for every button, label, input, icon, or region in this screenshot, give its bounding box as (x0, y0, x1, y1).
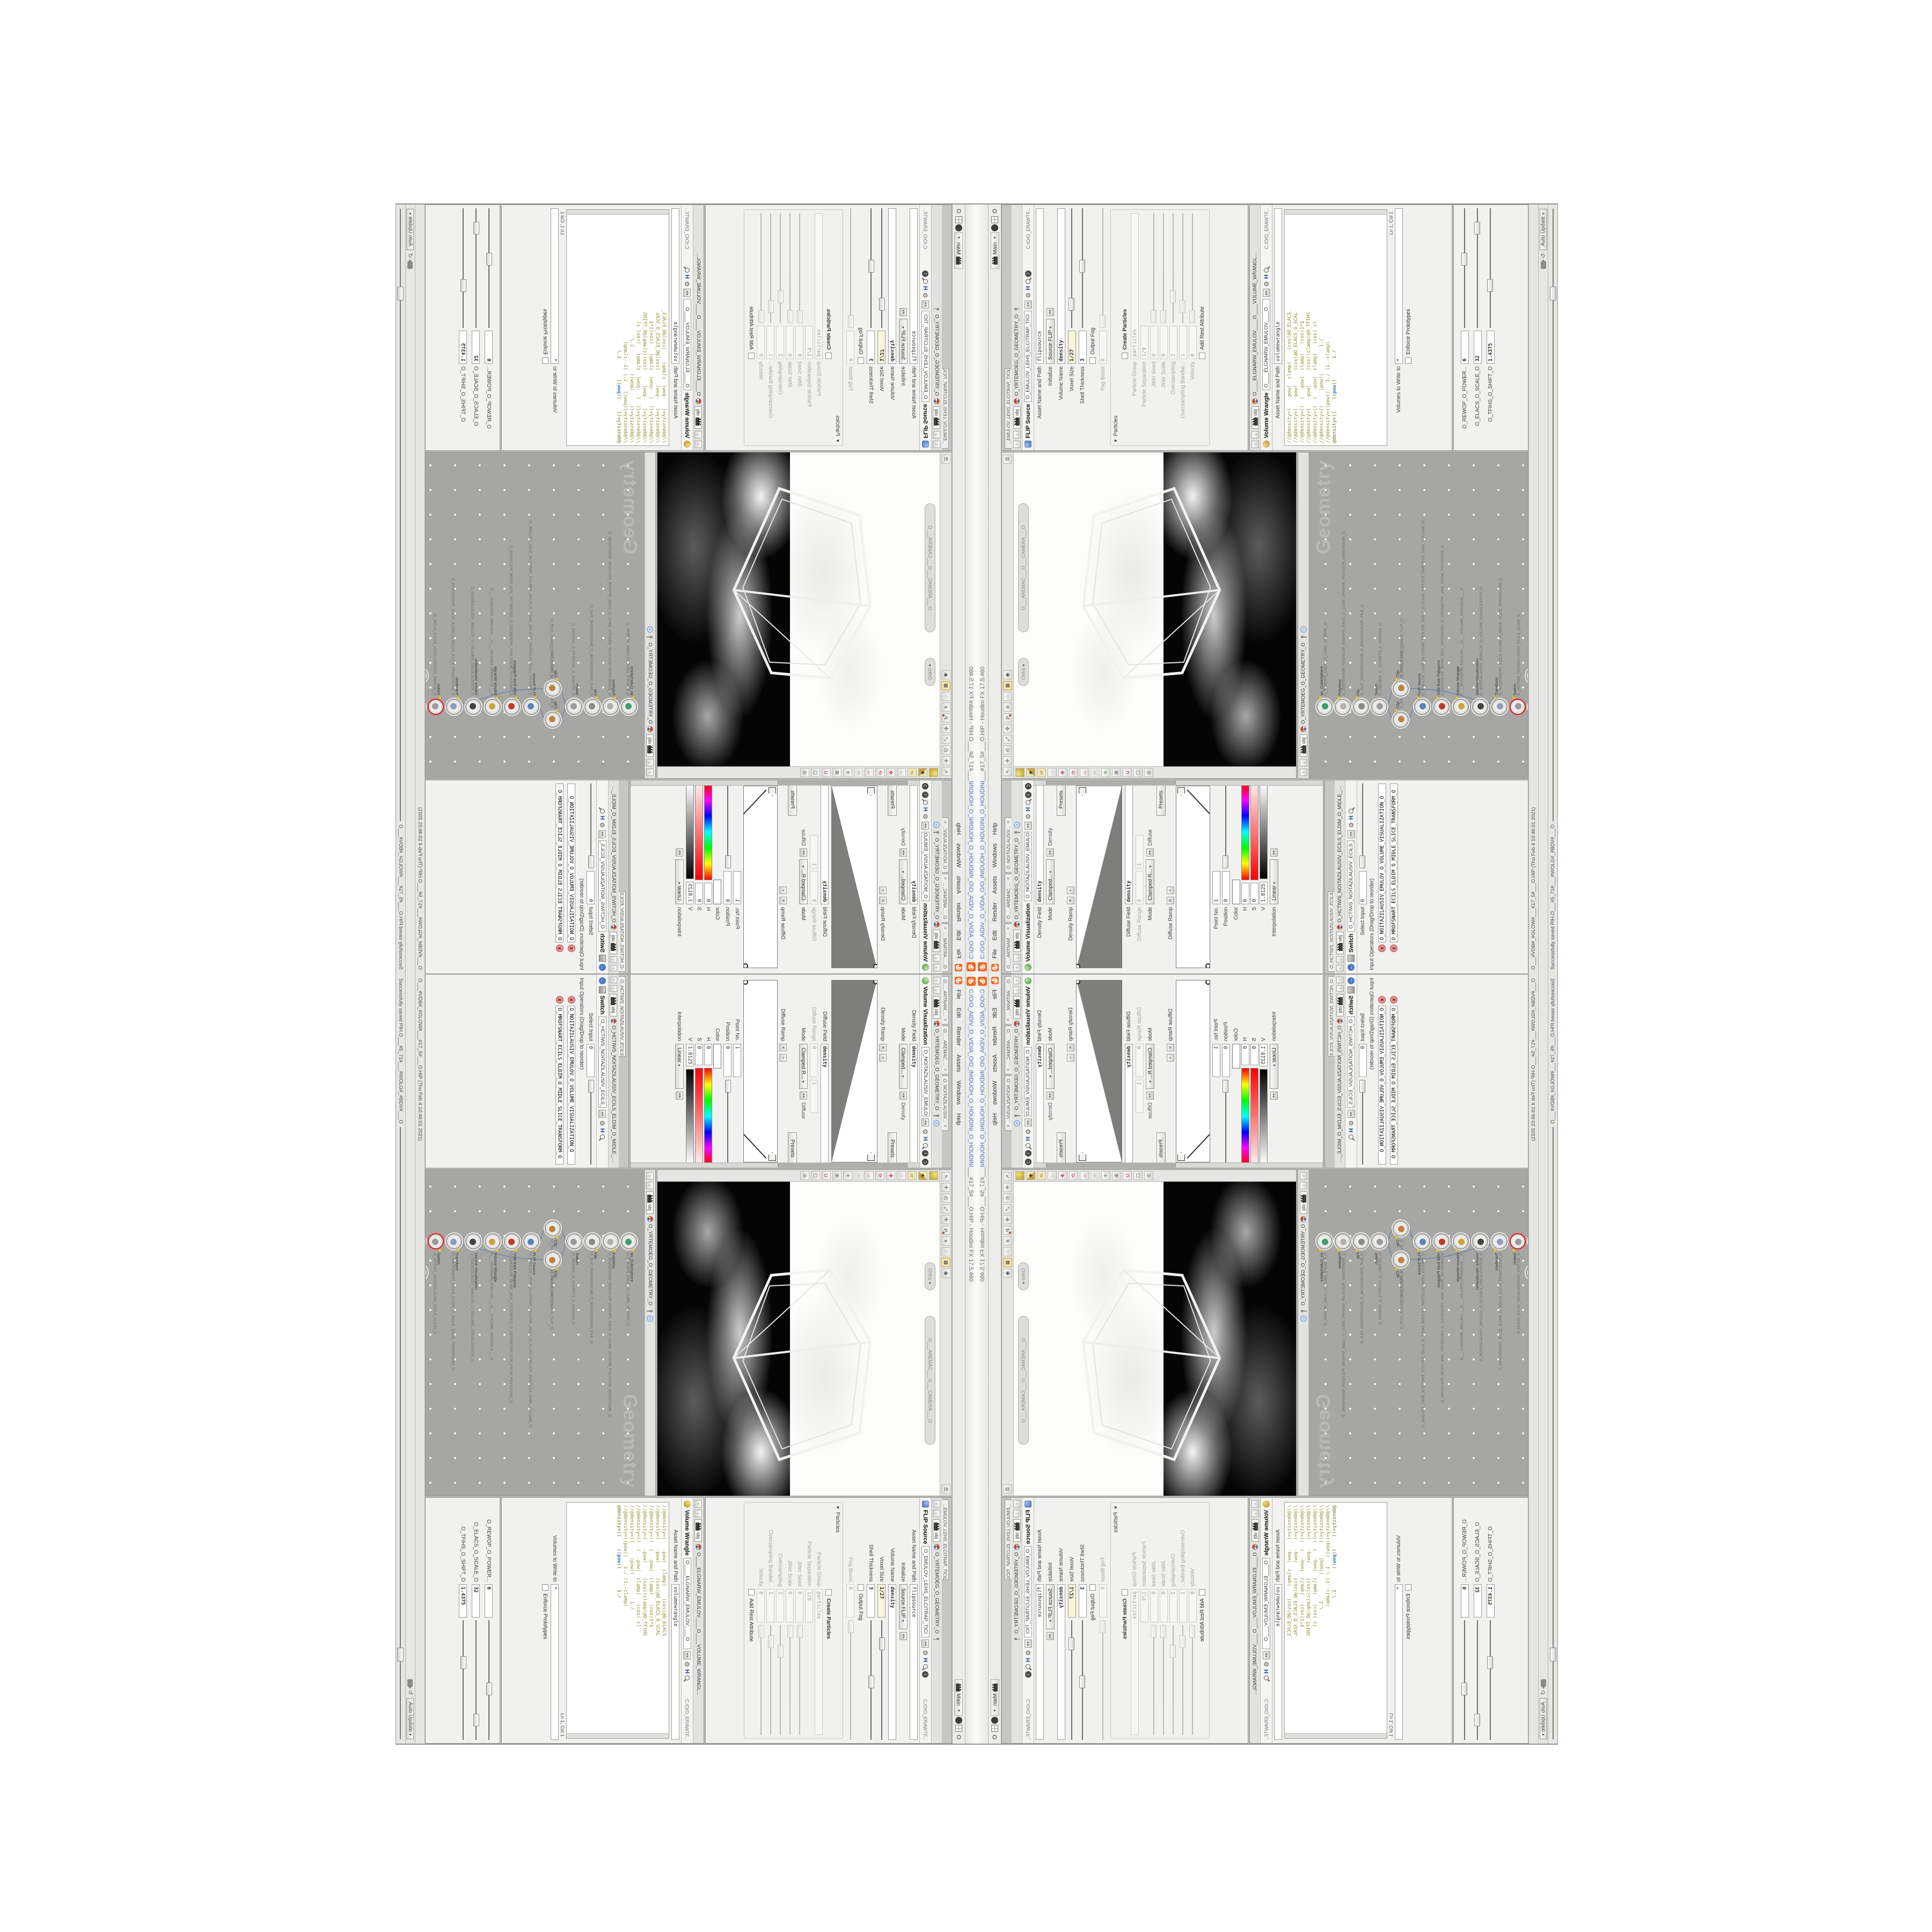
particle-separation-input[interactable]: 1/9 (806, 326, 814, 359)
network-node-transform[interactable] (1491, 699, 1507, 715)
desktop-selector[interactable]: Main (991, 1679, 999, 1716)
obj-tab[interactable]: obj (1300, 1191, 1307, 1214)
viewport-canvas[interactable]: Ortho O___AREMAC___O___CAMERA___O (1014, 452, 1296, 766)
nav-up-icon[interactable]: ↑ (647, 769, 654, 776)
select-input-slider[interactable] (587, 784, 595, 868)
nav-down-icon[interactable]: ↓ (933, 954, 941, 962)
code-line[interactable]: //@density=((pow(( 1./ (1.-clamp( (622, 212, 628, 443)
select-tool-icon[interactable]: ↖ (1003, 767, 1012, 776)
diffuse-range-max[interactable]: 1 (1136, 835, 1144, 868)
gear-icon[interactable] (1024, 1650, 1032, 1656)
obj-tab[interactable]: obj (1336, 932, 1344, 954)
search-icon[interactable] (923, 800, 928, 805)
pin-icon[interactable] (934, 830, 940, 836)
position-slider[interactable] (1222, 784, 1230, 868)
nav-down-icon[interactable]: ↓ (1300, 759, 1307, 766)
gear-icon[interactable] (599, 1120, 606, 1126)
jitter-seed-slider[interactable] (796, 1625, 803, 1735)
network-node-file[interactable] (584, 699, 601, 715)
desktop-selector[interactable]: Main (955, 232, 963, 269)
param-value-input[interactable]: 6 (485, 1584, 493, 1618)
position-slider[interactable] (1222, 1080, 1230, 1165)
obj-tab[interactable]: obj (933, 996, 941, 1019)
refresh-icon[interactable] (1540, 253, 1547, 258)
value-slider[interactable] (686, 1069, 694, 1165)
node-flag[interactable] (1395, 1267, 1398, 1270)
create-particles-checkbox[interactable] (825, 1589, 832, 1596)
pane-tab[interactable]: O_NOITAZILAUSIV...✕ (942, 817, 949, 873)
code-scrollbar[interactable] (1285, 1733, 1387, 1738)
initialize-dropdown[interactable]: Source FLIP (1046, 1584, 1055, 1629)
hue-slider[interactable] (704, 784, 712, 880)
param-value-input[interactable]: 1.4375 (1487, 331, 1495, 364)
menu-item-help[interactable]: Help (955, 818, 963, 839)
pose-tool-icon[interactable]: P (941, 1226, 950, 1235)
gear-icon[interactable] (1024, 1129, 1032, 1135)
shade-wire-icon[interactable]: ▱ (908, 1171, 917, 1180)
ramp-delete-icon[interactable]: ✕ (1067, 1044, 1074, 1051)
close-icon[interactable]: ✕ (1006, 927, 1011, 930)
jitter-scale-slider[interactable] (1160, 1625, 1167, 1735)
obj-tab[interactable]: obj (933, 406, 941, 429)
network-node-flip-source[interactable] (1414, 1233, 1430, 1249)
ladder-control[interactable]: ◂ ▸ (1046, 1092, 1054, 1100)
node-name-field[interactable]: O_EMULOV_LEHS_ELCITRAP_TICI (1024, 1546, 1032, 1637)
corner-button[interactable]: O (956, 207, 962, 215)
node-name-field[interactable]: O_NOITAZILAUSIV_EMULO (921, 1047, 930, 1116)
link-target-icon[interactable] (1300, 1315, 1307, 1322)
param-slider[interactable] (485, 208, 493, 328)
ramp-add-icon[interactable]: + (779, 1054, 787, 1062)
search-icon[interactable] (1026, 1664, 1030, 1669)
initialize-dropdown[interactable]: Source FLIP (899, 319, 908, 364)
density-mode-dropdown[interactable]: Clamped... (1046, 859, 1055, 904)
shade-flat-icon[interactable]: ◆ (918, 1171, 927, 1180)
code-line[interactable]: //@density=((pow(( 1./ (1.-clamp( (622, 1505, 628, 1736)
houdini-h-icon[interactable]: H (684, 275, 691, 279)
breadcrumb[interactable]: O_HCTIWS_NOITAZILAUSIV_ECILS_ELDIM_O_MID… (1337, 782, 1343, 923)
hue-input[interactable]: 0 (704, 883, 712, 904)
search-icon[interactable] (685, 268, 690, 273)
search-icon[interactable] (1349, 1135, 1353, 1139)
fog-boost-slider[interactable] (1099, 1620, 1107, 1740)
saturation-input[interactable]: 0 (695, 883, 703, 904)
cloth-icon[interactable]: ▢ (811, 1171, 820, 1180)
corner-button[interactable]: O (992, 1733, 998, 1741)
voxel-size-input[interactable]: 1/27 (1068, 331, 1076, 364)
pin-icon[interactable] (647, 1308, 654, 1313)
gear-icon[interactable] (922, 1129, 930, 1135)
enforce-prototypes-checkbox[interactable] (542, 1584, 548, 1591)
density-ramp-widget[interactable] (1076, 786, 1122, 968)
hue-input[interactable]: 0 (1241, 1044, 1249, 1065)
velocity-slider[interactable] (757, 213, 765, 323)
input-operator-path[interactable]: O_NOITAZILAUSIV_EMULOV_O_VOLUME_VISUALIZ… (1378, 784, 1386, 942)
obj-tab[interactable]: obj (610, 932, 618, 954)
code-line[interactable]: //@density=( -pow( clamp( (cos(@O_ELACS_ (1286, 1505, 1293, 1736)
search-icon[interactable] (685, 1675, 690, 1680)
menu-item-edit[interactable]: Edit (955, 926, 963, 945)
obj-tab[interactable]: obj (647, 734, 654, 757)
network-node-switch[interactable] (566, 1233, 582, 1249)
particle-separation-input[interactable]: 1/9 (1140, 326, 1148, 359)
jitter-seed-input[interactable]: 0 (796, 326, 804, 359)
breadcrumb[interactable]: O____ELGNARW_EMULOV____O____VOLUME_WRANG… (1252, 1552, 1258, 1695)
ramp-add-icon[interactable]: + (779, 887, 787, 894)
network-node-transform[interactable] (426, 668, 428, 684)
link-target-icon[interactable] (1014, 822, 1020, 828)
network-node-switch[interactable] (428, 699, 444, 715)
node-flag[interactable] (1416, 1249, 1419, 1252)
back-arrow-icon[interactable]: ← (599, 977, 606, 984)
view-layout-icon[interactable]: ▦ (1003, 1258, 1012, 1267)
nav-up-icon[interactable]: ↑ (933, 441, 941, 448)
nav-up-icon[interactable]: ↑ (933, 1500, 941, 1507)
shade-smooth-icon[interactable] (1015, 768, 1024, 777)
diffuse-ramp-widget[interactable] (743, 786, 778, 968)
select-input-field[interactable]: 0 (1359, 871, 1367, 904)
ramp-add-icon[interactable]: + (879, 1054, 887, 1062)
ladder-control[interactable]: ◂ ▸ (922, 301, 930, 309)
menu-item-assets[interactable]: Assets (991, 1050, 999, 1077)
diffuse-range-max[interactable]: 1 (810, 1080, 818, 1113)
shade-flat-icon[interactable]: ◆ (1026, 768, 1035, 777)
pane-scrollbar[interactable] (631, 780, 919, 786)
recook-icon[interactable] (1025, 783, 1031, 789)
recook-icon[interactable] (923, 1159, 929, 1165)
node-name-field[interactable]: O_HCTIWS_NOITAZILAUSIV_ECILS_EL (1347, 840, 1355, 932)
move-view-icon[interactable]: ✥ (1058, 1171, 1067, 1180)
orbit-view-icon[interactable]: ⟳ (1069, 1171, 1078, 1180)
cloth-icon[interactable]: ▢ (1133, 768, 1143, 777)
viewport-canvas[interactable]: Ortho O___AREMAC___O___CAMERA___O (657, 1182, 940, 1496)
nav-down-icon[interactable]: ↓ (1300, 1182, 1307, 1189)
presets-button[interactable]: Presets (888, 1132, 897, 1165)
search-icon[interactable] (1026, 800, 1030, 805)
node-flag[interactable] (515, 1249, 518, 1252)
network-node-switch[interactable] (1371, 699, 1387, 715)
ladder-control[interactable]: ◂ ▸ (899, 308, 907, 316)
ramp-delete-icon[interactable]: ✕ (779, 897, 787, 904)
network-node-file[interactable] (1353, 1233, 1369, 1249)
ladder-control[interactable]: ◂ ▸ (1263, 1651, 1270, 1659)
add-rest-checkbox[interactable] (1199, 353, 1205, 359)
velocity-input[interactable]: 0 (757, 326, 765, 359)
ramp-add-icon[interactable]: + (1067, 887, 1074, 894)
input-operator-path[interactable]: O_MROFSNART_ECILS_ELDIM_O_MIDLE_SLICE_TR… (556, 1006, 564, 1165)
info-icon[interactable]: i (1025, 792, 1031, 798)
param-slider[interactable] (1487, 1620, 1494, 1740)
node-flag[interactable] (495, 696, 499, 699)
network-node-clip[interactable] (545, 680, 561, 697)
density-mode-dropdown[interactable]: Clamped... (1046, 1044, 1055, 1089)
nav-down-icon[interactable]: ↓ (1013, 431, 1021, 438)
hue-slider[interactable] (1241, 784, 1249, 880)
select-input-slider[interactable] (1359, 784, 1366, 868)
jitter-seed-input[interactable]: 0 (1150, 1589, 1158, 1622)
value-input[interactable]: 1.8125 (686, 1044, 694, 1066)
ladder-control[interactable]: ◂ ▸ (676, 848, 683, 857)
oversampling-input[interactable]: 2 (777, 326, 785, 359)
initialize-dropdown[interactable]: Source FLIP (899, 1584, 908, 1629)
nav-up-icon[interactable]: ↑ (1252, 441, 1259, 448)
timeline-knob[interactable] (398, 287, 404, 301)
oversampling-slider[interactable] (777, 213, 784, 323)
pin-icon[interactable] (1014, 830, 1020, 836)
saturation-slider[interactable] (695, 784, 703, 880)
corner-button[interactable]: O (992, 207, 998, 215)
breadcrumb[interactable]: O_YRTEMOEG_O_GEOMETRY_O (934, 838, 940, 919)
pane-tab[interactable]: O___AREMAC_...✕ (1005, 1026, 1012, 1074)
snap-point-icon[interactable]: ∴ (1003, 692, 1012, 701)
diffuse-mode-dropdown[interactable]: Clamped R... (799, 859, 808, 904)
snap-grid-icon[interactable]: # (941, 702, 950, 712)
shade-smooth-icon[interactable] (929, 1171, 938, 1180)
code-line[interactable]: //@density=(( (pow(( 1./ (628, 1505, 635, 1736)
info-icon[interactable]: i (923, 1150, 929, 1157)
breadcrumb[interactable]: O_YRTEMOEG_O_GEOMETRY_O (934, 1552, 940, 1634)
pane-tab[interactable]: _EMULOV_LEHS_ELCITRAP_TICILPMI_DIULF_O_F… (942, 1499, 949, 1580)
output-fog-checkbox[interactable] (1089, 357, 1096, 364)
slider-knob[interactable] (1487, 279, 1493, 292)
shade-wire-icon[interactable]: ▱ (1037, 1171, 1046, 1180)
rotate-tool-icon[interactable]: ◴ (1003, 745, 1012, 755)
houdini-h-icon[interactable]: H (1025, 1658, 1031, 1662)
node-flag[interactable] (515, 696, 518, 699)
slider-knob[interactable] (460, 279, 466, 292)
ladder-control[interactable]: ◂ ▸ (1024, 301, 1032, 309)
voxel-size-input[interactable]: 1/27 (878, 331, 886, 364)
window-control-icon[interactable] (955, 224, 962, 231)
close-icon[interactable]: ✕ (943, 877, 947, 880)
node-name-field[interactable]: O_HCTIWS_NOITAZILAUSIV_ECILS_EL (598, 840, 606, 932)
shade-smooth-icon[interactable] (929, 768, 938, 777)
gear-icon[interactable] (922, 814, 930, 819)
asset-name-input[interactable]: flipsource (1036, 1584, 1044, 1740)
slider-knob[interactable] (1461, 253, 1467, 266)
jitter-scale-input[interactable]: 0 (786, 1589, 794, 1622)
asset-name-input[interactable]: flipsource (910, 208, 918, 364)
nav-down-icon[interactable]: ↓ (1336, 956, 1344, 963)
particle-group-input[interactable]: particles (815, 213, 823, 359)
pane-tab[interactable]: O___AREMAC_...✕ (942, 1026, 949, 1074)
oversampling-bandwidth-slider[interactable] (767, 213, 774, 323)
timeline-knob[interactable] (398, 1648, 404, 1662)
position-input[interactable]: 0 (1222, 1044, 1230, 1077)
delete-input-icon[interactable]: x (1390, 945, 1397, 952)
node-name-field[interactable]: O____ELGNARW_EMULOV____O (683, 1558, 691, 1649)
code-line[interactable]: //@density=(( ( -pow( clamp( (cos( cl (635, 212, 641, 443)
ramp-delete-icon[interactable]: ✕ (879, 897, 887, 904)
axis-jack-icon[interactable]: ✳ (1101, 1171, 1110, 1180)
nav-down-icon[interactable]: ↓ (1336, 985, 1344, 992)
hue-slider[interactable] (704, 1068, 712, 1165)
network-node-switch[interactable] (566, 699, 582, 715)
ramp-add-icon[interactable]: + (879, 887, 887, 894)
point-no-input[interactable]: 1 (734, 871, 742, 904)
volume-name-input[interactable]: density (1057, 1584, 1065, 1740)
shell-thickness-slider[interactable] (867, 1620, 875, 1740)
gear-icon[interactable] (1263, 281, 1270, 287)
network-canvas[interactable]: Geometry an_CubeSphereO_EREHPS_EBUC_O_CU… (1309, 1170, 1528, 1496)
timeline-slider[interactable] (398, 209, 404, 821)
houdini-h-icon[interactable]: H (1348, 1128, 1355, 1132)
ladder-control[interactable]: ◂ ▸ (684, 289, 691, 297)
houdini-h-icon[interactable]: H (1263, 1669, 1270, 1673)
camera-icon[interactable] (1541, 1679, 1546, 1687)
gear-icon[interactable] (684, 1662, 691, 1667)
jitter-scale-slider[interactable] (786, 1625, 794, 1735)
code-line[interactable]: @density=(( ((pow(( 1./ (616, 1505, 622, 1736)
nav-up-icon[interactable]: ↑ (1013, 964, 1021, 971)
ramp-add-icon[interactable]: + (1067, 1054, 1074, 1062)
translate-tool-icon[interactable]: ✛ (941, 1183, 950, 1192)
density-field-input[interactable]: density (1036, 1044, 1044, 1165)
gear-icon[interactable] (1263, 1662, 1270, 1667)
diffuse-ramp-widget[interactable] (743, 980, 778, 1162)
fog-boost-input[interactable]: 0 (847, 331, 855, 364)
desktop-selector[interactable]: Main (991, 232, 999, 269)
ramp-delete-icon[interactable]: ✕ (1167, 897, 1174, 904)
particle-separation-input[interactable]: 1/9 (1140, 1589, 1148, 1622)
input-operator-path[interactable]: O_MROFSNART_ECILS_ELDIM_O_MIDLE_SLICE_TR… (556, 784, 564, 942)
film-reel-icon[interactable]: ◎ (800, 768, 809, 777)
node-flag[interactable] (495, 1249, 499, 1252)
ladder-control[interactable]: ◂ ▸ (1046, 1632, 1054, 1640)
diffuse-range-min[interactable]: 0 (810, 871, 818, 904)
node-name-field[interactable]: O_HCTIWS_NOITAZILAUSIV_ECILS_EL (1347, 1016, 1355, 1108)
hue-input[interactable]: 0 (1241, 883, 1249, 904)
node-flag[interactable] (1355, 696, 1358, 699)
network-node-transform[interactable] (1491, 1233, 1507, 1249)
presets-button[interactable]: Presets (788, 1132, 797, 1165)
enforce-prototypes-checkbox[interactable] (1405, 1584, 1411, 1591)
close-icon[interactable]: ✕ (943, 1124, 947, 1128)
position-input[interactable]: 0 (1222, 871, 1230, 904)
node-flag[interactable] (1512, 1249, 1515, 1252)
jitter-seed-slider[interactable] (1150, 1625, 1158, 1735)
houdini-h-icon[interactable]: H (1025, 1137, 1031, 1141)
node-flag[interactable] (438, 1249, 442, 1252)
create-particles-checkbox[interactable] (1122, 353, 1128, 359)
node-name-field[interactable]: O____ELGNARW_EMULOV____O (683, 299, 691, 390)
ramp-add-icon[interactable]: + (1167, 1054, 1174, 1062)
search-icon[interactable] (923, 1664, 928, 1669)
nav-up-icon[interactable]: ↑ (1336, 977, 1344, 983)
handles-tool-icon[interactable]: ✣ (941, 1215, 950, 1224)
slider-knob[interactable] (486, 1682, 492, 1695)
output-fog-checkbox[interactable] (858, 1584, 864, 1591)
camera-pill[interactable]: O___AREMAC___O___CAMERA___O (925, 503, 935, 632)
axis-jack-icon[interactable]: ✳ (843, 768, 852, 777)
node-name-field[interactable]: O_NOITAZILAUSIV_EMULO (1024, 832, 1032, 901)
film-reel-icon[interactable]: ◎ (1144, 1171, 1153, 1180)
slider-knob[interactable] (1461, 1682, 1467, 1695)
view-pivot-icon[interactable]: ◌ (1048, 768, 1057, 777)
node-flag[interactable] (613, 1249, 617, 1252)
link-target-icon[interactable] (647, 626, 654, 633)
menu-item-edit[interactable]: Edit (991, 1004, 999, 1022)
param-slider[interactable] (459, 1620, 467, 1740)
menu-item-windows[interactable]: Windows (955, 839, 963, 872)
section-label[interactable]: ▾ Particles (833, 210, 841, 445)
display-options-icon[interactable]: ☰ (941, 455, 950, 464)
presets-button[interactable]: Presets (1157, 1132, 1166, 1165)
menu-item-render[interactable]: Render (991, 898, 999, 926)
recook-icon[interactable] (1025, 1159, 1031, 1165)
node-flag[interactable] (1395, 1236, 1398, 1239)
view-pivot-icon[interactable]: ◌ (1048, 1171, 1057, 1180)
refresh-icon[interactable] (1540, 1690, 1547, 1695)
obj-tab[interactable]: obj (933, 930, 941, 952)
interpolation-dropdown[interactable]: Linear (675, 859, 684, 904)
pane-tab[interactable]: _EMULOV_LEHS_ELCITRAP_TICILPMI_DIULF_O_F… (942, 368, 949, 449)
oversampling-bandwidth-input[interactable]: 1 (767, 1589, 775, 1622)
node-flag[interactable] (613, 696, 617, 699)
density-field-input[interactable]: density (910, 1044, 918, 1165)
network-node-an-cubesphere[interactable] (1316, 1233, 1333, 1249)
nav-up-icon[interactable]: ↑ (1013, 977, 1021, 984)
ladder-control[interactable]: ◂ ▸ (1348, 830, 1355, 838)
nav-down-icon[interactable]: ↓ (610, 956, 618, 963)
oversampling-bandwidth-slider[interactable] (767, 1625, 774, 1735)
scale-tool-icon[interactable]: ⤢ (1003, 735, 1012, 744)
network-node-polywire[interactable] (603, 699, 619, 715)
shell-thickness-slider[interactable] (867, 208, 875, 328)
film-reel-icon[interactable]: ◎ (800, 1171, 809, 1180)
density-ramp-widget[interactable] (1076, 980, 1122, 1162)
nav-down-icon[interactable]: ↓ (933, 1510, 941, 1517)
oversampling-bandwidth-input[interactable]: 1 (1179, 1589, 1187, 1622)
translate-tool-icon[interactable]: ✛ (1003, 756, 1012, 765)
nav-down-icon[interactable]: ↓ (695, 431, 702, 438)
cloth-icon[interactable]: ▢ (811, 768, 820, 777)
value-slider[interactable] (686, 784, 694, 879)
saturation-slider[interactable] (1250, 784, 1258, 880)
network-node-clip[interactable] (545, 1252, 561, 1268)
volumes-to-write-input[interactable]: * (551, 1584, 559, 1740)
color-swatch[interactable] (713, 1044, 721, 1069)
ladder-control[interactable]: ◂ ▸ (1046, 308, 1054, 316)
code-line[interactable]: //@density=(( ( -pow( clamp( (cos(1*$ (648, 1505, 654, 1736)
node-flag[interactable] (534, 696, 537, 699)
window-control-icon[interactable] (955, 1717, 962, 1724)
saturation-input[interactable]: 0 (1250, 1044, 1258, 1065)
select-input-field[interactable]: 0 (1359, 1044, 1367, 1077)
info-icon[interactable]: i (1025, 270, 1031, 277)
create-particles-checkbox[interactable] (825, 353, 832, 359)
menu-item-render[interactable]: Render (955, 1022, 963, 1050)
network-node-an-cubesphere[interactable] (621, 1233, 637, 1249)
network-node-polywire[interactable] (1335, 699, 1351, 715)
code-line[interactable]: //@density=( -pow( (cos((clamp(@O_TFIHS (1306, 1505, 1312, 1736)
network-node-polywire[interactable] (603, 1233, 619, 1249)
view-layout-icon[interactable]: ▦ (941, 1258, 950, 1267)
diffuse-range-min[interactable]: 0 (1136, 871, 1144, 904)
breadcrumb[interactable]: O_YRTEMOEG_O_GEOMETRY_O (647, 1224, 653, 1306)
add-rest-checkbox[interactable] (748, 353, 755, 359)
network-node-polywire[interactable] (1335, 1233, 1351, 1249)
zoom-view-icon[interactable]: ⇔ (865, 768, 874, 777)
pin-icon[interactable] (1300, 635, 1307, 640)
value-input[interactable]: 1.8125 (686, 882, 694, 904)
ramp-point-handle[interactable] (873, 964, 877, 968)
shell-thickness-input[interactable]: 3 (1079, 1584, 1087, 1618)
ladder-control[interactable]: ◂ ▸ (922, 1118, 930, 1126)
node-flag[interactable] (1319, 696, 1322, 699)
auto-update-dropdown[interactable]: Auto Update (407, 209, 414, 250)
camera-icon[interactable] (408, 261, 413, 269)
